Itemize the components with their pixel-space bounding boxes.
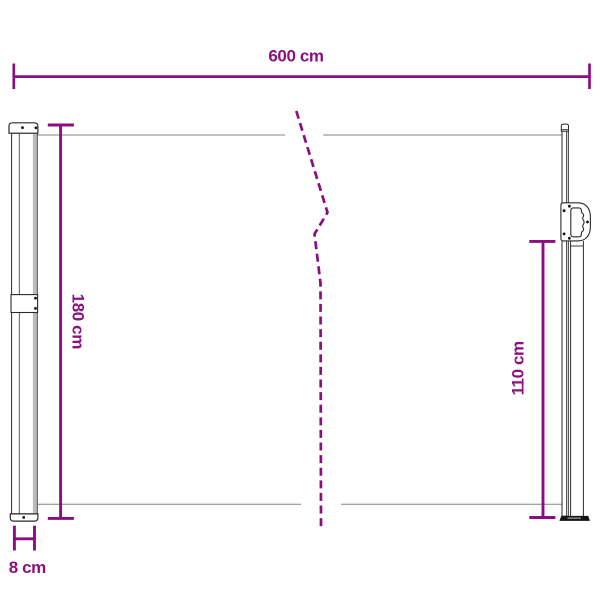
svg-text:180 cm: 180 cm: [69, 294, 88, 350]
svg-text:110 cm: 110 cm: [509, 341, 528, 396]
svg-text:8 cm: 8 cm: [9, 558, 46, 577]
svg-text:600 cm: 600 cm: [268, 46, 324, 65]
